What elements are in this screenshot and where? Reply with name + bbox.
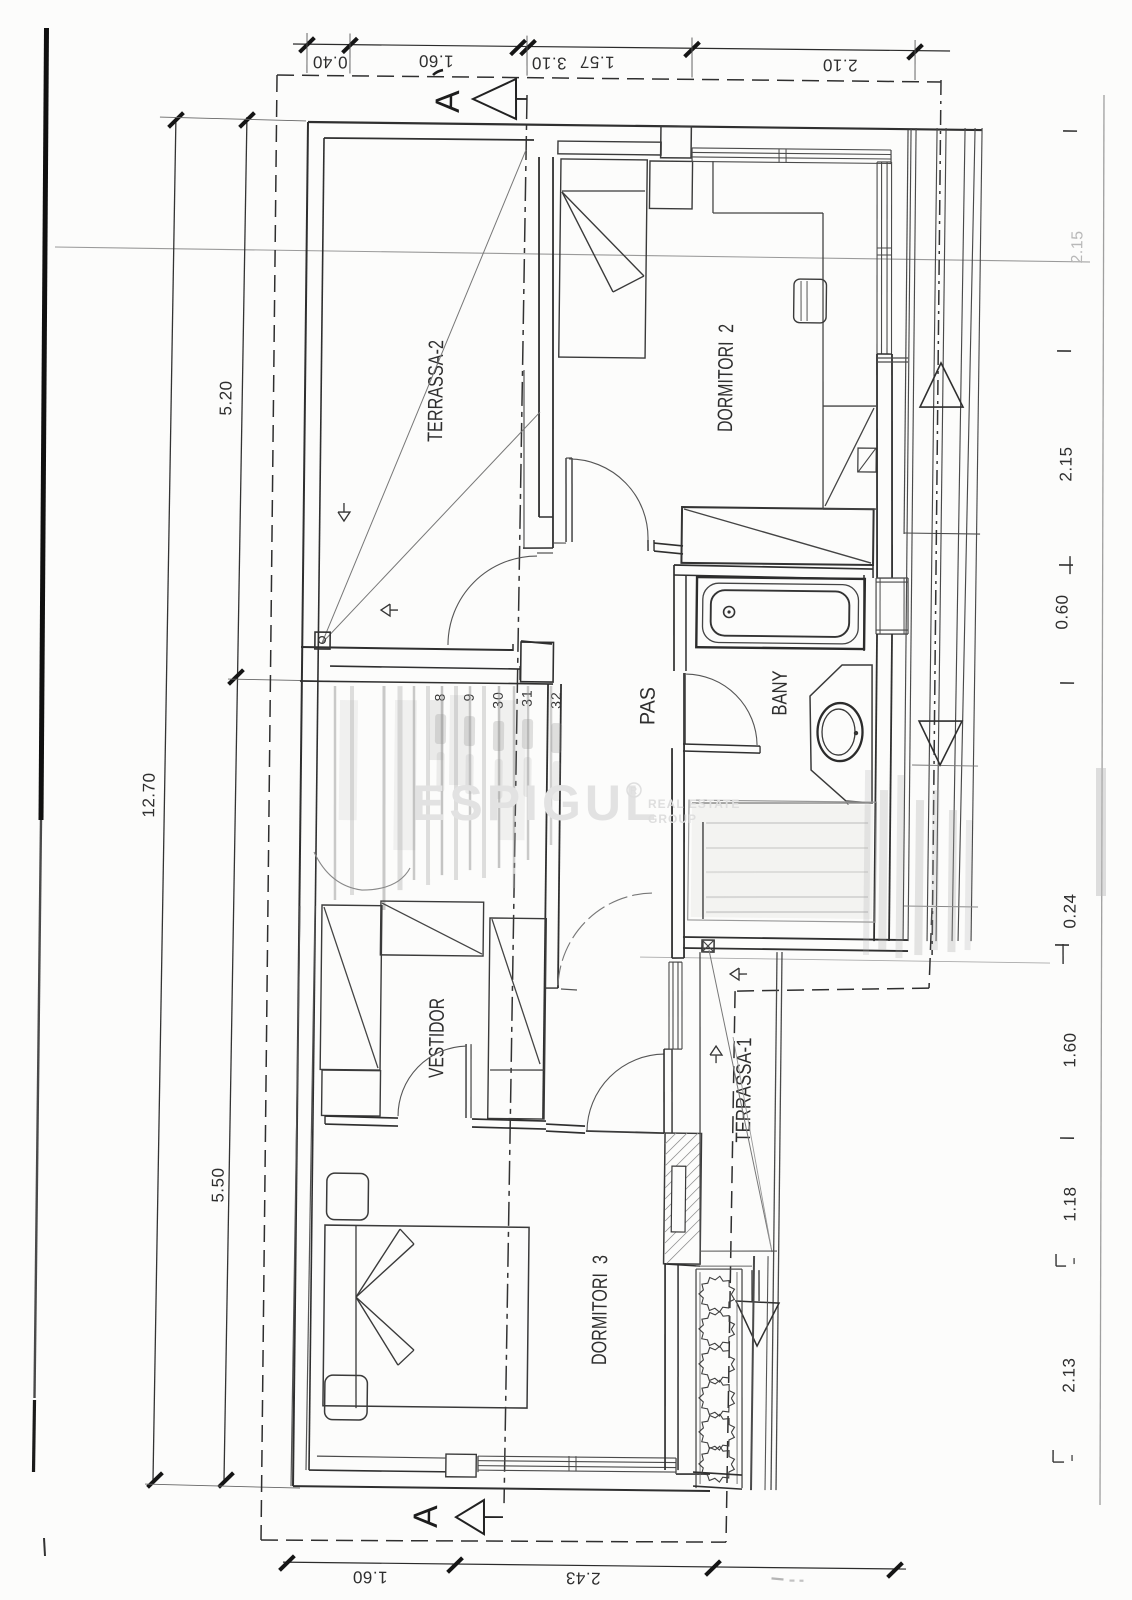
svg-text:PAS: PAS xyxy=(636,687,659,725)
svg-text:2.15: 2.15 xyxy=(1069,230,1086,263)
svg-text:5.20: 5.20 xyxy=(216,380,235,415)
svg-text:1.60: 1.60 xyxy=(1060,1032,1079,1067)
svg-text:VESTIDOR: VESTIDOR xyxy=(425,998,449,1078)
svg-text:DORMITORI 3: DORMITORI 3 xyxy=(588,1255,612,1365)
svg-text:REAL ESTATE: REAL ESTATE xyxy=(648,797,740,811)
svg-text:GROUP: GROUP xyxy=(648,812,697,826)
svg-text:5.50: 5.50 xyxy=(208,1167,227,1202)
svg-text:3.10: 3.10 xyxy=(531,53,566,72)
svg-text:R: R xyxy=(630,786,637,797)
svg-text:TERRASSA-2: TERRASSA-2 xyxy=(424,340,448,442)
svg-text:DORMITORI 2: DORMITORI 2 xyxy=(714,324,738,432)
svg-text:0.60: 0.60 xyxy=(1052,594,1071,629)
svg-text:0.40: 0.40 xyxy=(312,52,347,71)
svg-text:2.13: 2.13 xyxy=(1059,1357,1078,1392)
svg-text:ESPIGUL: ESPIGUL xyxy=(412,775,659,831)
svg-text:1.18: 1.18 xyxy=(1060,1186,1079,1221)
svg-text:0.24: 0.24 xyxy=(1060,893,1079,928)
svg-text:BANY: BANY xyxy=(768,670,792,715)
svg-text:1.60: 1.60 xyxy=(418,51,453,70)
svg-text:12.70: 12.70 xyxy=(139,772,159,817)
svg-text:2.43: 2.43 xyxy=(565,1568,600,1587)
svg-text:A: A xyxy=(429,89,467,113)
svg-text:1.60: 1.60 xyxy=(352,1567,387,1586)
svg-text:2.10: 2.10 xyxy=(822,55,857,74)
svg-text:2.15: 2.15 xyxy=(1056,446,1075,481)
svg-text:A: A xyxy=(407,1504,445,1528)
svg-text:1.57: 1.57 xyxy=(579,52,614,71)
